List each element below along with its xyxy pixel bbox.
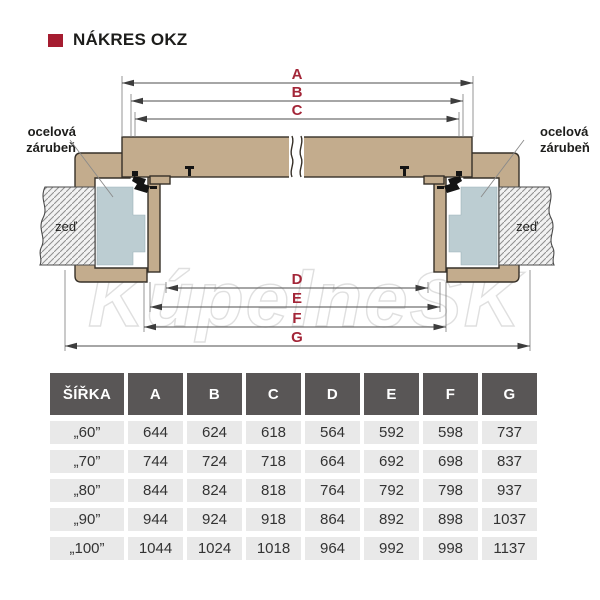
table-row: „80”844824818764792798937 [50, 479, 537, 502]
table-cell: 1044 [128, 537, 183, 560]
table-row: „60”644624618564592598737 [50, 421, 537, 444]
dimension-label-d: D [292, 271, 303, 288]
table-cell: 664 [305, 450, 360, 473]
table-cell: 1018 [246, 537, 301, 560]
table-cell: 1024 [187, 537, 242, 560]
table-cell: 937 [482, 479, 537, 502]
dimension-label-g: G [291, 329, 303, 346]
table-cell: 944 [128, 508, 183, 531]
door-frame-cross-section-diagram: KúpelneSK zeď zeď [0, 60, 600, 370]
table-cell: 844 [128, 479, 183, 502]
break-symbol [289, 134, 304, 180]
table-row: „90”9449249188648928981037 [50, 508, 537, 531]
page-header: NÁKRES OKZ [48, 30, 187, 50]
table-cell: 792 [364, 479, 419, 502]
dimension-c: C [135, 102, 459, 119]
wall-label-left: zeď [55, 219, 78, 234]
table-cell: 644 [128, 421, 183, 444]
table-body: „60”644624618564592598737„70”74472471866… [50, 421, 537, 560]
table-cell: 698 [423, 450, 478, 473]
column-header-a: A [128, 373, 183, 415]
table-cell: 1037 [482, 508, 537, 531]
column-header-sirka: ŠÍŘKA [50, 373, 124, 415]
column-header-g: G [482, 373, 537, 415]
table-cell: 724 [187, 450, 242, 473]
table-cell: 737 [482, 421, 537, 444]
column-header-c: C [246, 373, 301, 415]
table-cell: 744 [128, 450, 183, 473]
callout-text: zárubeň [540, 140, 590, 155]
table-row: „70”744724718664692698837 [50, 450, 537, 473]
column-header-b: B [187, 373, 242, 415]
red-square-bullet-icon [48, 34, 63, 47]
callout-text: ocelová [540, 124, 589, 139]
dimension-label-a: A [292, 66, 303, 83]
table-cell: 824 [187, 479, 242, 502]
wood-casing-strip-right [434, 177, 446, 272]
steel-frame-profile-right [449, 187, 497, 265]
table-cell: 964 [305, 537, 360, 560]
dimension-a: A [122, 66, 473, 83]
door-leaf-rebate-right [424, 176, 444, 184]
page: NÁKRES OKZ KúpelneSK zeď [0, 0, 600, 600]
table-cell: 992 [364, 537, 419, 560]
table-cell: 837 [482, 450, 537, 473]
column-header-e: E [364, 373, 419, 415]
table-cell: 718 [246, 450, 301, 473]
table-cell: 924 [187, 508, 242, 531]
table-cell: 598 [423, 421, 478, 444]
row-label: „60” [50, 421, 124, 444]
table-cell: 618 [246, 421, 301, 444]
table-cell: 818 [246, 479, 301, 502]
callout-text: ocelová [28, 124, 77, 139]
door-leaf-rebate-left [150, 176, 170, 184]
row-label: „90” [50, 508, 124, 531]
dimension-label-e: E [292, 290, 302, 307]
table-cell: 692 [364, 450, 419, 473]
callout-text: zárubeň [26, 140, 76, 155]
table-cell: 564 [305, 421, 360, 444]
row-label: „100” [50, 537, 124, 560]
table-cell: 998 [423, 537, 478, 560]
dimension-b: B [131, 84, 463, 101]
table-cell: 1137 [482, 537, 537, 560]
row-label: „70” [50, 450, 124, 473]
table-cell: 864 [305, 508, 360, 531]
column-header-d: D [305, 373, 360, 415]
table-row: „100”1044102410189649929981137 [50, 537, 537, 560]
dimensions-table: ŠÍŘKA A B C D E F G „60”6446246185645925… [46, 367, 541, 566]
table-cell: 918 [246, 508, 301, 531]
steel-frame-profile-left [97, 187, 145, 265]
table-cell: 592 [364, 421, 419, 444]
wall-label-right: zeď [516, 219, 539, 234]
dimensions-table-wrap: ŠÍŘKA A B C D E F G „60”6446246185645925… [46, 367, 541, 566]
table-cell: 624 [187, 421, 242, 444]
table-cell: 764 [305, 479, 360, 502]
table-cell: 892 [364, 508, 419, 531]
table-header-row: ŠÍŘKA A B C D E F G [50, 373, 537, 415]
table-cell: 798 [423, 479, 478, 502]
row-label: „80” [50, 479, 124, 502]
dimension-label-f: F [292, 310, 301, 327]
wood-casing-strip-left [148, 177, 160, 272]
dimension-label-b: B [292, 84, 303, 101]
page-title: NÁKRES OKZ [73, 30, 187, 50]
dimension-label-c: C [292, 102, 303, 119]
table-cell: 898 [423, 508, 478, 531]
column-header-f: F [423, 373, 478, 415]
